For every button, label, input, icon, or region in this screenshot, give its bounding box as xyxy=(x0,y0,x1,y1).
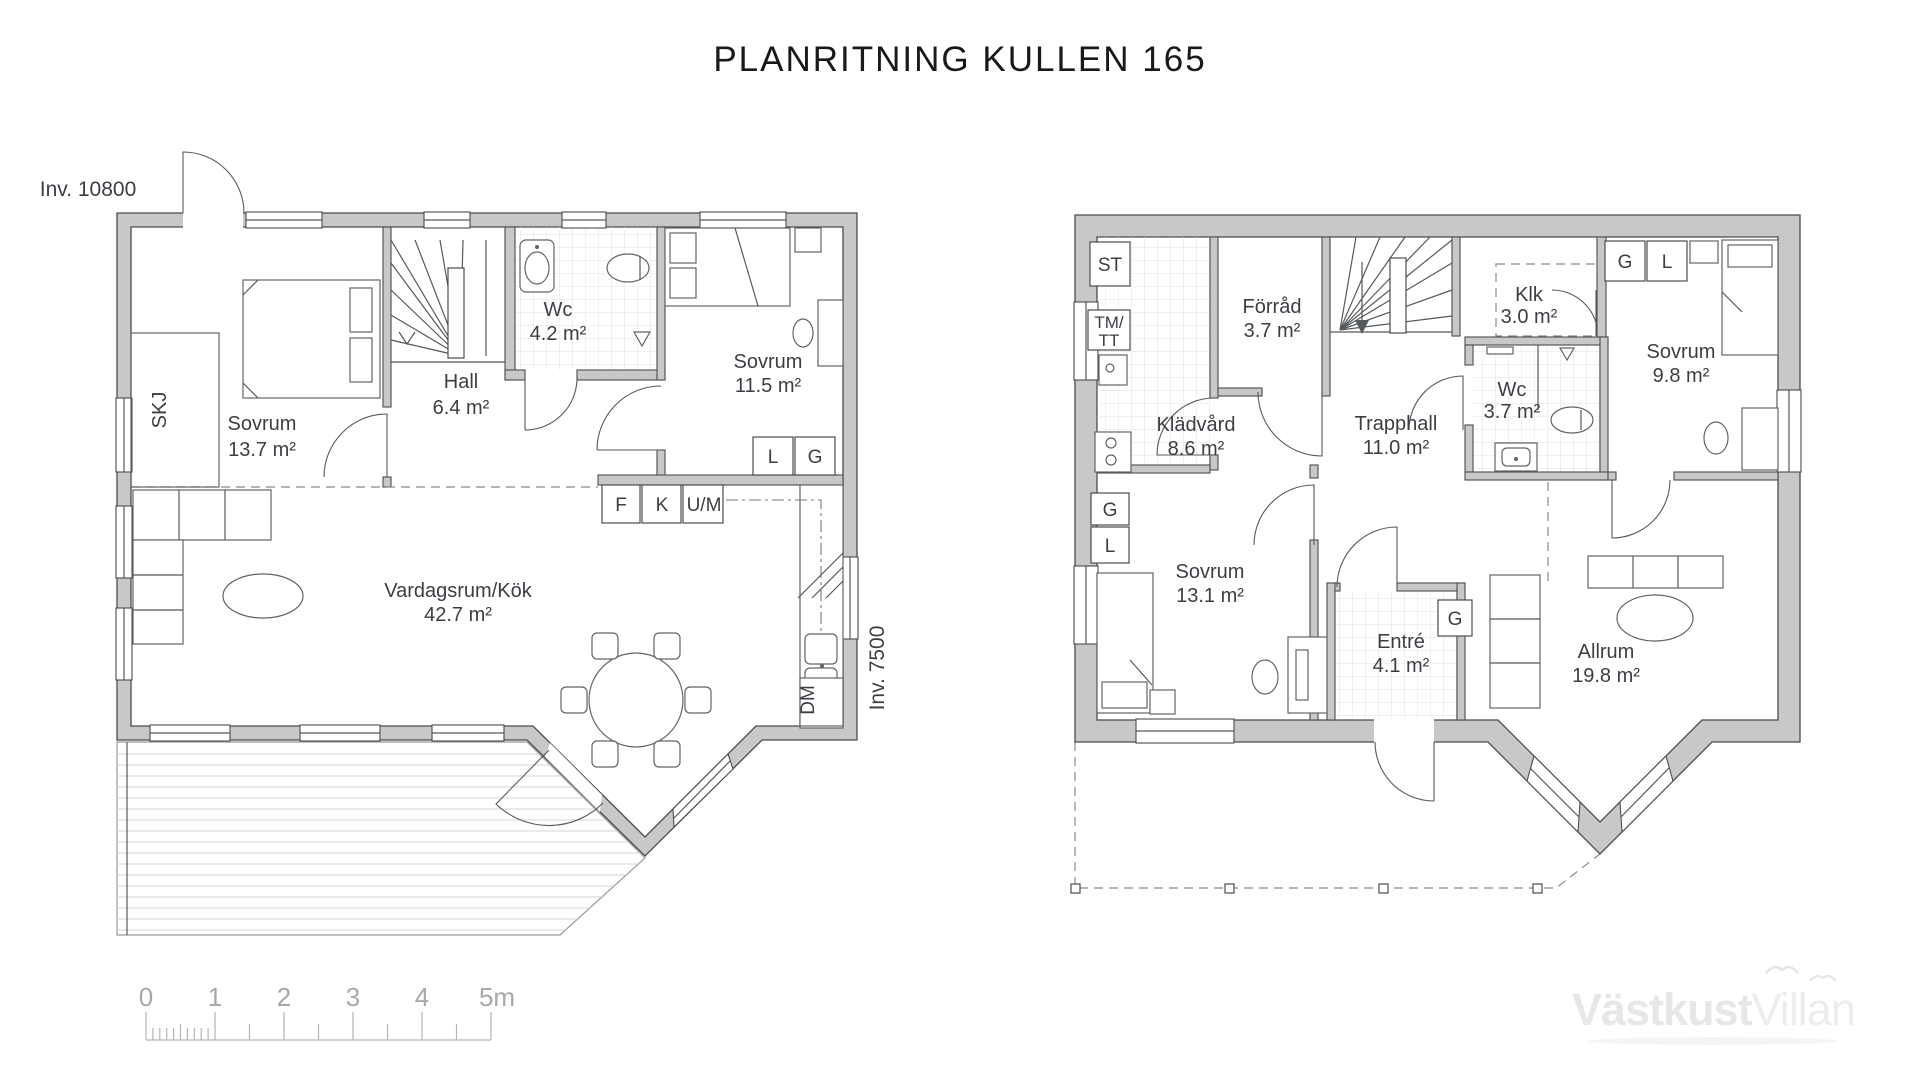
coffee-table-icon xyxy=(1617,595,1693,641)
room-kladvard-area: 8.6 m² xyxy=(1168,438,1225,460)
scale-0: 0 xyxy=(139,982,153,1012)
dim-inv-10800: Inv. 10800 xyxy=(40,178,137,201)
skj-closet xyxy=(131,333,219,487)
toilet-icon xyxy=(1551,407,1593,433)
room-allrum-area: 19.8 m² xyxy=(1572,665,1640,687)
logo-light-text: Villan xyxy=(1752,984,1855,1035)
room-sovrum1-name: Sovrum xyxy=(228,413,297,435)
logo-swoosh xyxy=(1588,1037,1838,1045)
room-wc2-area: 3.7 m² xyxy=(1484,401,1541,423)
front-door xyxy=(1375,742,1434,801)
floor-plan-upper: G L G L G xyxy=(1071,215,1801,893)
room-trapphall-name: Trapphall xyxy=(1355,413,1438,435)
room-trapphall-area: 11.0 m² xyxy=(1363,437,1430,459)
wardrobe-l-top-label: L xyxy=(1662,252,1673,273)
scale-2: 2 xyxy=(277,982,291,1012)
desk-icon xyxy=(1742,408,1778,470)
room-wc-area: 4.2 m² xyxy=(530,323,587,345)
scale-5m: 5m xyxy=(479,982,515,1012)
floorplan-sheet: PLANRITNING KULLEN 165 xyxy=(0,0,1920,1089)
room-sovrum4-area: 13.1 m² xyxy=(1176,585,1244,607)
wardrobe-g-entre-label: G xyxy=(1448,609,1463,630)
kitchen-counter xyxy=(726,485,843,728)
dim-inv-7500: Inv. 7500 xyxy=(866,626,889,711)
wardrobe-g-top-label: G xyxy=(1618,252,1633,273)
sofa-icon xyxy=(133,490,271,540)
scale-3: 3 xyxy=(346,982,360,1012)
tm-label: TM/ xyxy=(1094,313,1124,332)
room-vardagsrum-name: Vardagsrum/Kök xyxy=(384,580,532,602)
sofa-icon xyxy=(1588,556,1723,588)
room-entre-name: Entré xyxy=(1377,631,1425,653)
coffee-table-icon xyxy=(223,574,303,618)
floorplan-drawing: L G F K U/M xyxy=(0,0,1920,1089)
stairs-upper xyxy=(1330,237,1452,334)
wardrobe-l-left-label: L xyxy=(1105,536,1116,557)
room-sovrum2-area: 11.5 m² xyxy=(735,375,802,397)
room-wc-name: Wc xyxy=(544,299,573,321)
room-sovrum3-name: Sovrum xyxy=(1647,341,1716,363)
floor-plan-ground: L G F K U/M xyxy=(40,152,889,935)
scale-4: 4 xyxy=(415,982,429,1012)
wardrobe-l-label: L xyxy=(768,447,779,468)
room-sovrum2-name: Sovrum xyxy=(734,351,803,373)
room-forrad-name: Förråd xyxy=(1243,296,1302,318)
room-klk-name: Klk xyxy=(1515,284,1544,306)
room-allrum-name: Allrum xyxy=(1578,641,1635,663)
room-hall-area: 6.4 m² xyxy=(433,397,490,419)
room-entre-area: 4.1 m² xyxy=(1373,655,1430,677)
dm-label: DM xyxy=(798,685,819,715)
st-label: ST xyxy=(1098,255,1123,276)
oven-micro-label: U/M xyxy=(687,495,722,516)
sink-icon xyxy=(805,634,837,664)
fridge-label: F xyxy=(615,495,627,516)
bedroom2-furniture xyxy=(665,228,843,366)
scale-1: 1 xyxy=(208,982,222,1012)
birds-icon xyxy=(1762,957,1852,991)
wardrobe-g-label: G xyxy=(808,447,823,468)
room-klk-area: 3.0 m² xyxy=(1501,306,1558,328)
toilet-icon xyxy=(607,254,649,282)
room-sovrum1-area: 13.7 m² xyxy=(228,439,296,461)
freezer-label: K xyxy=(656,495,669,516)
logo-vastkustvillan: VästkustVillan xyxy=(1572,985,1872,1035)
room-sovrum4-name: Sovrum xyxy=(1176,561,1245,583)
stairs-ground xyxy=(391,240,505,362)
wardrobe-g-left-label: G xyxy=(1103,500,1118,521)
scale-bar: 0 1 2 3 4 5m xyxy=(139,982,515,1040)
entry-door xyxy=(183,152,244,213)
tt-label: TT xyxy=(1099,331,1120,350)
room-hall-name: Hall xyxy=(444,371,478,393)
logo-bold-text: Västkust xyxy=(1572,984,1752,1035)
skj-label: SKJ xyxy=(149,392,171,429)
room-wc2-name: Wc xyxy=(1498,379,1527,401)
desk-icon xyxy=(818,300,843,366)
room-forrad-area: 3.7 m² xyxy=(1244,320,1301,342)
room-sovrum3-area: 9.8 m² xyxy=(1653,365,1710,387)
room-vardagsrum-area: 42.7 m² xyxy=(424,604,492,626)
room-kladvard-name: Klädvård xyxy=(1157,414,1236,436)
dining-table-icon xyxy=(589,653,683,747)
